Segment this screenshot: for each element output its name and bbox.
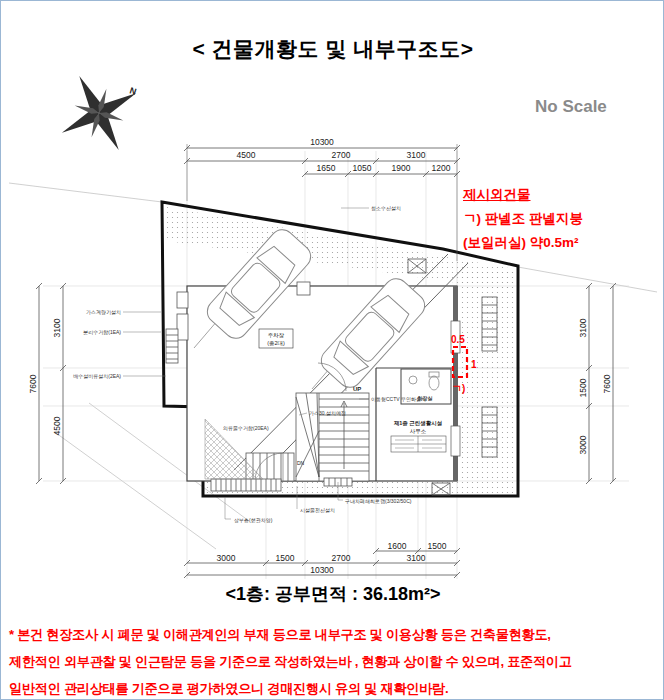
disclaimer-note: * 본건 현장조사 시 폐문 및 이해관계인의 부재 등으로 내부구조 및 이용… [9, 621, 659, 700]
drawing-page: < 건물개황도 및 내부구조도> No Scale 제시외건물 ㄱ) 판넬조 판… [0, 0, 664, 700]
floor-area-caption: <1층: 공부면적 : 36.18m²> [1, 582, 664, 606]
svg-text:구내차폐쇄회로캠(3/302/50C): 구내차폐쇄회로캠(3/302/50C) [345, 498, 412, 504]
svg-text:3100: 3100 [407, 150, 426, 160]
svg-text:제1종 근린생활시설: 제1종 근린생활시설 [394, 420, 443, 427]
svg-text:3100: 3100 [52, 318, 62, 337]
compass-icon [42, 56, 156, 170]
svg-text:4500: 4500 [52, 416, 62, 435]
stair-up-label: UP [353, 386, 361, 392]
disclaimer-line1: * 본건 현장조사 시 폐문 및 이해관계인의 부재 등으로 내부구조 및 이용… [9, 621, 659, 648]
svg-text:3100: 3100 [578, 318, 588, 337]
svg-text:3000: 3000 [578, 435, 588, 454]
svg-text:ㄱ): ㄱ) [452, 383, 465, 394]
svg-text:사무소: 사무소 [410, 428, 427, 434]
svg-text:1650: 1650 [317, 163, 336, 173]
svg-text:분리수거함(1EA): 분리수거함(1EA) [83, 329, 121, 335]
svg-text:7600: 7600 [602, 374, 612, 393]
svg-text:시설물전선설치: 시설물전선설치 [300, 507, 335, 513]
stair-dn-label: DN [297, 460, 305, 466]
svg-text:청소수선설치: 청소수선설치 [371, 205, 401, 212]
svg-text:가스계량기설치: 가스계량기설치 [86, 309, 121, 315]
svg-text:0.5: 0.5 [451, 334, 465, 345]
svg-text:1500: 1500 [578, 378, 588, 397]
office-label: 제1종 근린생활시설 사무소 [391, 420, 446, 452]
svg-text:1: 1 [471, 359, 477, 370]
svg-text:3000: 3000 [217, 553, 236, 563]
svg-text:7600: 7600 [28, 374, 38, 393]
disclaimer-line3: 일반적인 관리상태를 기준으로 평가하였으니 경매진행시 유의 및 재확인바람. [9, 675, 659, 700]
svg-text:10300: 10300 [310, 137, 334, 147]
parking-label: 주차장 (총2대) [259, 329, 293, 348]
svg-text:1200: 1200 [432, 163, 451, 173]
svg-text:주차장: 주차장 [268, 332, 285, 339]
svg-text:1500: 1500 [276, 553, 295, 563]
svg-text:1900: 1900 [392, 163, 411, 173]
svg-text:2700: 2700 [332, 150, 351, 160]
disclaimer-line2: 제한적인 외부관찰 및 인근탐문 등을 기준으로 작성하였는바 , 현황과 상이… [9, 648, 659, 675]
svg-text:2700: 2700 [332, 553, 351, 563]
svg-text:1500: 1500 [428, 541, 447, 551]
svg-text:이동형CCTV 무인화설치: 이동형CCTV 무인화설치 [371, 396, 426, 402]
svg-text:(총2대): (총2대) [267, 340, 285, 346]
svg-text:4500: 4500 [237, 150, 256, 160]
svg-text:10300: 10300 [310, 565, 334, 575]
svg-text:3100: 3100 [407, 553, 426, 563]
svg-text:가스30 설치예정: 가스30 설치예정 [309, 410, 346, 417]
svg-text:의류물수거함(20EA): 의류물수거함(20EA) [223, 425, 269, 431]
compass-north-label: N [128, 85, 137, 97]
svg-text:배수설비류설치(2EA): 배수설비류설치(2EA) [73, 373, 121, 379]
svg-text:상부층(현관차양): 상부층(현관차양) [234, 517, 273, 523]
svg-text:1600: 1600 [388, 541, 407, 551]
svg-text:1050: 1050 [353, 163, 372, 173]
